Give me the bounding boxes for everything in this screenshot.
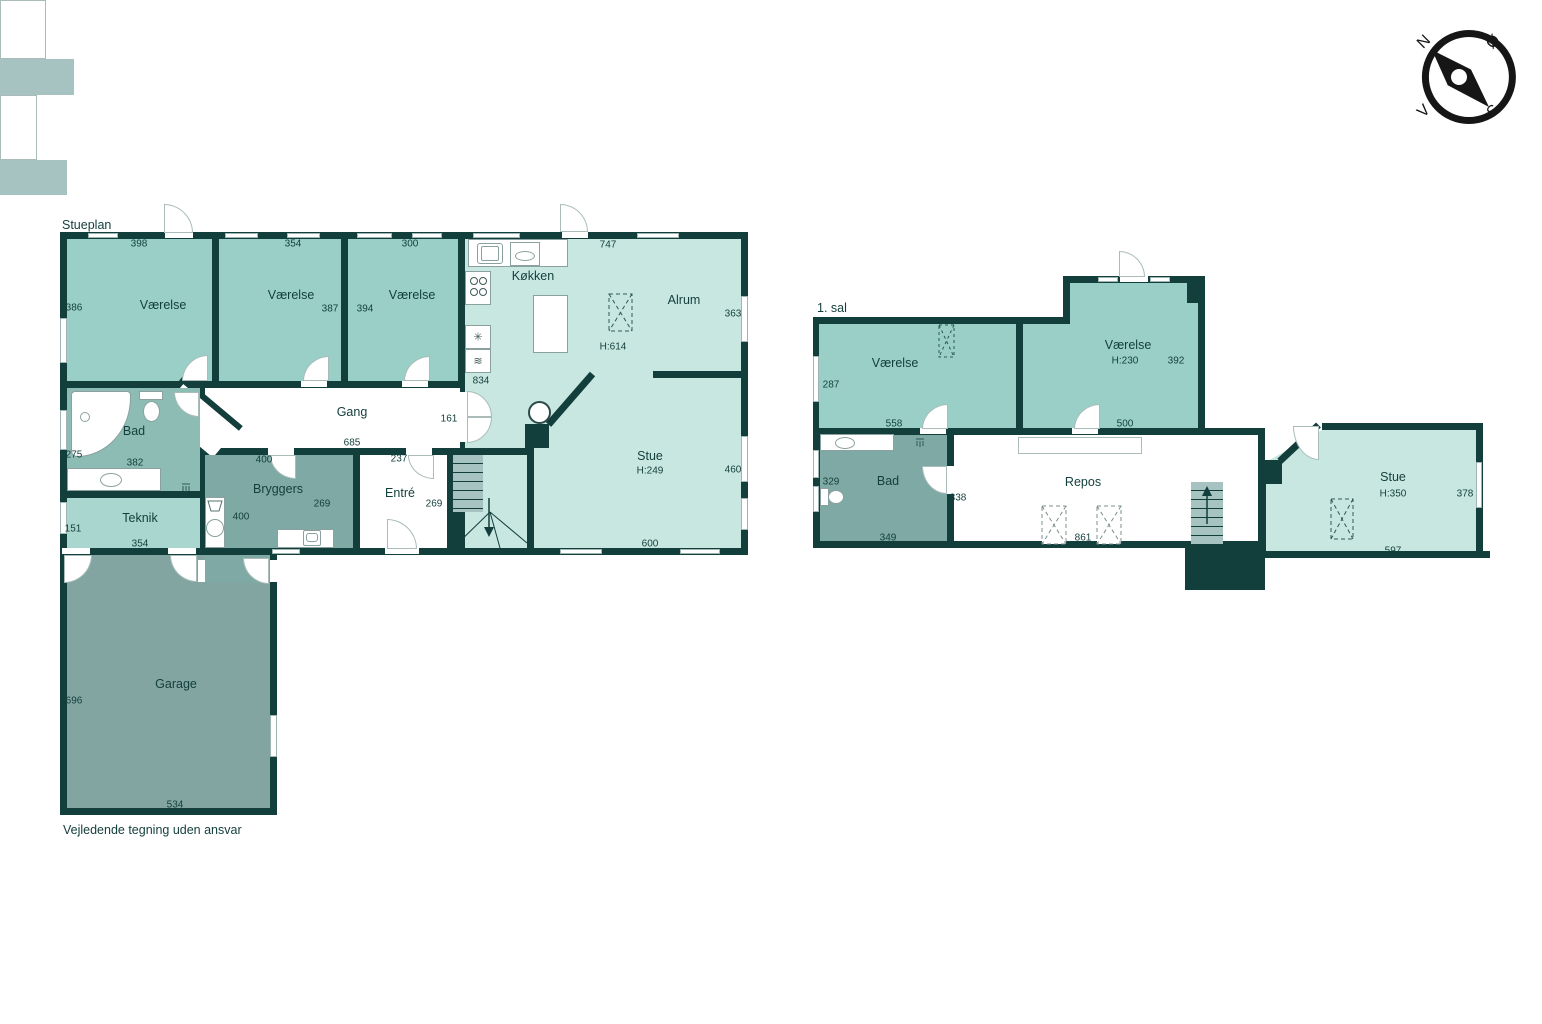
kitchen-sink-basin (481, 246, 499, 261)
room-label: Garage (155, 677, 197, 691)
window (560, 549, 602, 554)
bad-counter (820, 434, 894, 451)
dim-label: 363 (725, 309, 742, 320)
headroom-outline (1018, 437, 1142, 454)
dim-label: 338 (950, 493, 967, 504)
room-label: Bryggers (253, 482, 303, 496)
window (287, 233, 320, 238)
wood-stove-icon (528, 401, 551, 424)
dim-label: 534 (167, 800, 184, 811)
room-vaerelse-1f-left (819, 324, 1016, 428)
room-vaerelse-1f-bump (1070, 283, 1187, 331)
room-label: Bad (123, 424, 145, 438)
room-label: Alrum (668, 293, 701, 307)
compass-ring-icon (1402, 11, 1535, 144)
dim-label: 696 (66, 696, 83, 707)
room-label: Værelse (872, 356, 919, 370)
room-label: Værelse (1105, 338, 1152, 352)
dim-label: 275 (66, 450, 83, 461)
dim-label: 597 (1385, 546, 1402, 557)
window (60, 318, 67, 363)
room-label: Køkken (512, 269, 554, 283)
compass-rose: N Ø S V (1384, 2, 1534, 152)
dim-label: 378 (1457, 489, 1474, 500)
door-opening (406, 448, 432, 455)
dim-label: H:230 (1112, 356, 1139, 367)
window (412, 233, 442, 238)
window (813, 450, 819, 478)
window (1476, 462, 1482, 508)
door-opening (62, 548, 90, 554)
stairs-detail-icon (453, 455, 534, 548)
stairs-landing (0, 0, 46, 59)
stairs-winder (0, 160, 67, 195)
room-label: Værelse (140, 298, 187, 312)
skylight-icon (1041, 505, 1067, 545)
window (813, 356, 819, 402)
dim-label: 834 (473, 376, 490, 387)
room-label: Stue (637, 449, 663, 463)
room-label: Teknik (122, 511, 157, 525)
dim-label: 287 (823, 380, 840, 391)
door-opening (460, 392, 467, 442)
window (272, 549, 300, 554)
dim-label: 398 (131, 239, 148, 250)
door-opening (270, 560, 277, 582)
door-opening (301, 381, 327, 387)
chimney (525, 424, 549, 448)
dim-label: H:614 (600, 342, 627, 353)
door-opening (562, 232, 588, 238)
dim-label: 269 (426, 499, 443, 510)
sink-basin-icon (100, 473, 122, 487)
door-arc (164, 204, 193, 233)
utility-sink-icon (207, 500, 223, 512)
door-arc (1119, 251, 1145, 277)
dim-label: 392 (1168, 356, 1185, 367)
toilet-tank-icon (139, 391, 163, 400)
window (270, 715, 277, 757)
window (741, 498, 748, 530)
dim-label: 400 (256, 455, 273, 466)
cooktop-icon (469, 275, 487, 301)
oven-icon: ≋ (473, 355, 482, 368)
dim-label: 151 (65, 524, 82, 535)
dim-label: 685 (344, 438, 361, 449)
room-label: Gang (337, 405, 368, 419)
wall-stue-left (1258, 476, 1266, 558)
bathtub-drain-icon (80, 412, 90, 422)
window (741, 296, 748, 342)
dim-label: 349 (880, 533, 897, 544)
room-label: Værelse (268, 288, 315, 302)
dim-label: 600 (642, 539, 659, 550)
dim-label: 329 (823, 477, 840, 488)
window (60, 410, 67, 450)
plan-title-stueplan: Stueplan (62, 218, 111, 232)
room-vaerelse-1f-step (1187, 303, 1198, 327)
sink-basin-icon (835, 437, 855, 449)
plan-title-first-floor: 1. sal (817, 301, 847, 315)
window (680, 549, 720, 554)
dim-label: 500 (1117, 419, 1134, 430)
washer-icon (206, 519, 224, 537)
stairs-winder (0, 59, 74, 95)
window (225, 233, 258, 238)
toilet-bowl-icon (143, 401, 160, 422)
dim-label: 354 (285, 239, 302, 250)
dim-label: 382 (127, 458, 144, 469)
dim-label: 460 (725, 465, 742, 476)
chimney (1258, 460, 1282, 484)
kitchen-island (533, 295, 568, 353)
door-opening (198, 560, 205, 582)
dim-label: 300 (402, 239, 419, 250)
toilet-bowl-icon (828, 490, 844, 504)
wall-stue-bottom (1258, 551, 1490, 558)
door-opening (947, 466, 954, 494)
dim-label: H:350 (1380, 489, 1407, 500)
room-label: Værelse (389, 288, 436, 302)
window (473, 233, 520, 238)
room-label: Bad (877, 474, 899, 488)
room-gang (205, 388, 460, 448)
dim-label: 558 (886, 419, 903, 430)
bryggers-sink-basin (306, 533, 318, 542)
window (813, 486, 819, 512)
stairs-detail-icon (1191, 482, 1258, 583)
skylight-icon (608, 293, 633, 332)
dim-label: 269 (314, 499, 331, 510)
door-arc (560, 204, 588, 232)
window (357, 233, 392, 238)
dim-label: 237 (391, 454, 408, 465)
dishwasher-basin (515, 251, 535, 261)
skylight-icon (1096, 505, 1122, 545)
window (741, 436, 748, 482)
room-label: Repos (1065, 475, 1101, 489)
stairs-landing (0, 95, 37, 160)
dim-label: 387 (322, 304, 339, 315)
door-opening (168, 548, 196, 554)
dim-label: 386 (66, 303, 83, 314)
dim-label: 394 (357, 304, 374, 315)
window (1098, 277, 1118, 282)
floorplan-canvas: Stueplan ✳ ≋ (0, 0, 1542, 1024)
dim-label: 747 (600, 240, 617, 251)
window (637, 233, 679, 238)
dim-label: 354 (132, 539, 149, 550)
room-label: Entré (385, 486, 415, 500)
room-label: Stue (1380, 470, 1406, 484)
wall-stairwell-top (447, 448, 534, 455)
disclaimer-text: Vejledende tegning uden ansvar (63, 823, 242, 837)
dim-label: 400 (233, 512, 250, 523)
skylight-icon (1330, 498, 1354, 540)
hotplate-icon: ✳ (473, 331, 482, 344)
dim-label: H:249 (637, 466, 664, 477)
window (1150, 277, 1170, 282)
shower-icon (180, 481, 192, 493)
wall-alrum-stue (653, 371, 741, 378)
dim-label: 861 (1075, 533, 1092, 544)
dim-label: 161 (441, 414, 458, 425)
loft-hatch-icon (938, 324, 955, 358)
window (88, 233, 118, 238)
door-opening (402, 381, 428, 387)
shower-icon (914, 436, 926, 448)
